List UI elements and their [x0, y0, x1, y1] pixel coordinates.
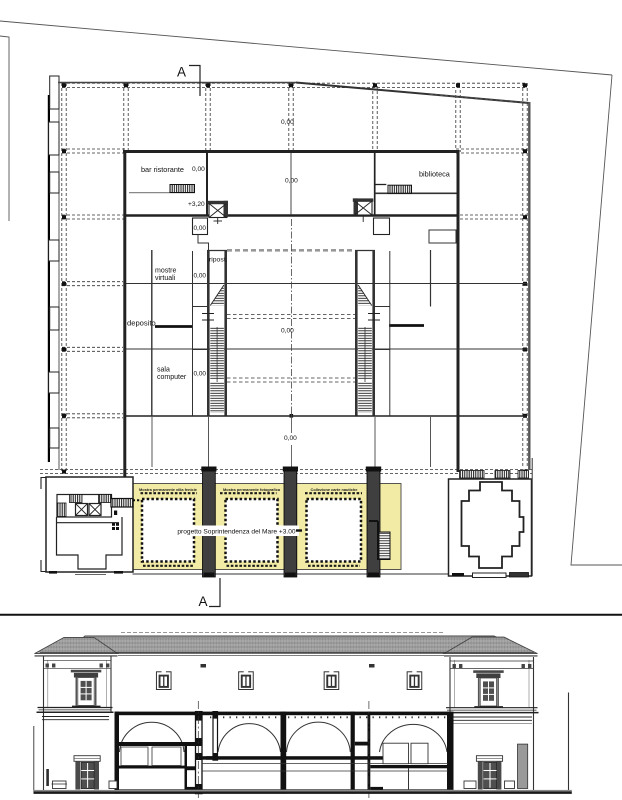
svg-text:deposito: deposito — [127, 319, 156, 328]
svg-text:progetto Soprintendenza del Ma: progetto Soprintendenza del Mare +3.00 — [177, 529, 296, 536]
svg-text:Mostra permanente fotografica: Mostra permanente fotografica — [223, 487, 281, 492]
svg-text:biblioteca: biblioteca — [419, 170, 451, 179]
svg-text:virtuali: virtuali — [155, 275, 176, 282]
svg-text:bar ristorante: bar ristorante — [141, 165, 184, 174]
svg-text:sala: sala — [157, 367, 170, 374]
svg-text:0,00: 0,00 — [194, 225, 207, 232]
svg-text:0,00: 0,00 — [281, 328, 294, 335]
svg-text:A: A — [199, 594, 208, 609]
svg-text:0,00: 0,00 — [281, 119, 294, 126]
svg-text:Collezione carte nautiche: Collezione carte nautiche — [311, 487, 359, 492]
svg-text:0,00: 0,00 — [284, 435, 297, 442]
svg-text:Mostra permanente villa fenici: Mostra permanente villa fenicie — [139, 487, 198, 492]
svg-text:0,00: 0,00 — [192, 166, 205, 173]
svg-text:+3,20: +3,20 — [188, 201, 205, 208]
svg-text:ripost.: ripost. — [209, 257, 228, 264]
svg-text:computer: computer — [157, 374, 187, 381]
svg-text:mostre: mostre — [155, 268, 177, 275]
svg-text:0,00: 0,00 — [194, 273, 207, 280]
svg-text:0,00: 0,00 — [194, 371, 207, 378]
svg-text:A: A — [177, 65, 186, 80]
svg-text:0,00: 0,00 — [285, 178, 298, 185]
